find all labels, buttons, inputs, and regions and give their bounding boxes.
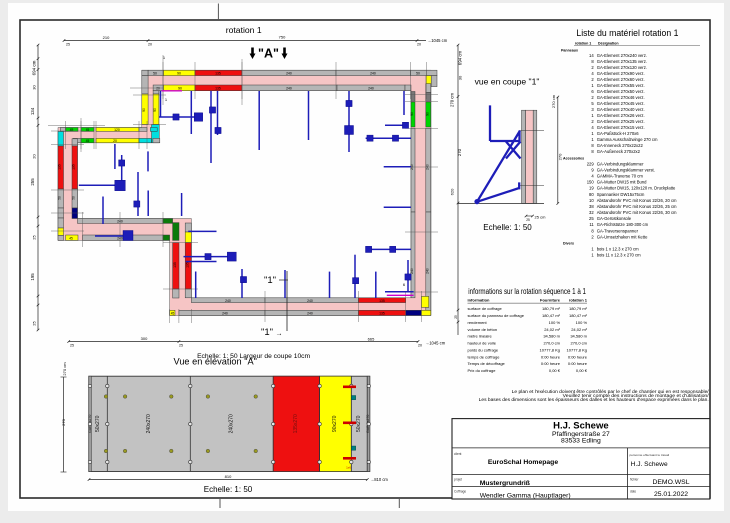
svg-text:135: 135 bbox=[215, 86, 221, 90]
svg-text:GAMMA-Traverse 70 cm: GAMMA-Traverse 70 cm bbox=[597, 174, 644, 179]
svg-text:270 cm: 270 cm bbox=[551, 94, 556, 108]
svg-text:rotation 1: rotation 1 bbox=[569, 297, 588, 302]
svg-text:"A": "A" bbox=[258, 47, 279, 61]
svg-text:135: 135 bbox=[185, 262, 189, 268]
svg-text:0,00 €: 0,00 € bbox=[576, 368, 588, 373]
svg-text:"1": "1" bbox=[264, 275, 276, 286]
svg-text:GA-Außeneck 270x2x2: GA-Außeneck 270x2x2 bbox=[597, 149, 641, 154]
svg-text:24,02 m³: 24,02 m³ bbox=[571, 327, 587, 332]
svg-text:240x270: 240x270 bbox=[146, 414, 152, 433]
svg-text:GA-Paßstück-H 270x6: GA-Paßstück-H 270x6 bbox=[597, 131, 640, 136]
svg-text:50x270: 50x270 bbox=[356, 415, 362, 432]
svg-text:1x6: 1x6 bbox=[346, 466, 351, 470]
svg-text:GA-Element 270x50 verz.: GA-Element 270x50 verz. bbox=[597, 89, 645, 94]
svg-text:Liste du matériel rotation 1: Liste du matériel rotation 1 bbox=[576, 28, 678, 38]
svg-text:90: 90 bbox=[178, 86, 182, 90]
svg-text:150: 150 bbox=[587, 180, 595, 185]
svg-text:informations sur la rotation: informations sur la rotation séquence 1 … bbox=[468, 287, 586, 296]
svg-text:Wendler Gamma (Hauptlager): Wendler Gamma (Hauptlager) bbox=[480, 492, 571, 499]
svg-text:→810 cm: →810 cm bbox=[370, 477, 388, 482]
svg-text:temps de coffrage: temps de coffrage bbox=[468, 354, 501, 359]
svg-text:information: information bbox=[468, 297, 491, 302]
svg-text:Désignation: Désignation bbox=[598, 41, 619, 45]
svg-text:Coffrage: Coffrage bbox=[454, 489, 466, 493]
svg-text:90: 90 bbox=[142, 108, 146, 112]
svg-text:GA-Mutter DW15, 120x120 m. Dru: GA-Mutter DW15, 120x120 m. Druckplatte bbox=[597, 186, 676, 191]
svg-text:GA-Traversenspanner: GA-Traversenspanner bbox=[597, 228, 639, 233]
svg-text:30: 30 bbox=[458, 75, 463, 80]
svg-text:GA-Inneneck 270x22x22: GA-Inneneck 270x22x22 bbox=[597, 143, 644, 148]
svg-text:GA-Element 270x240 verz.: GA-Element 270x240 verz. bbox=[597, 53, 647, 58]
svg-text:10777,8 Kg: 10777,8 Kg bbox=[567, 347, 587, 352]
svg-text:0,00 €: 0,00 € bbox=[549, 368, 561, 373]
svg-text:rendement: rendement bbox=[468, 320, 488, 325]
svg-text:Prix du coffrage: Prix du coffrage bbox=[468, 368, 497, 373]
svg-text:240: 240 bbox=[425, 268, 429, 274]
svg-text:210: 210 bbox=[103, 35, 110, 40]
svg-text:229: 229 bbox=[587, 161, 595, 166]
svg-text:Mustergrundriß: Mustergrundriß bbox=[480, 480, 530, 487]
svg-text:20: 20 bbox=[156, 86, 160, 90]
svg-text:30: 30 bbox=[31, 85, 36, 90]
svg-text:Temps de décoffrage: Temps de décoffrage bbox=[468, 361, 506, 366]
svg-text:240: 240 bbox=[368, 86, 374, 90]
svg-text:Abstandsrohr PVC mit Konus 22/: Abstandsrohr PVC mit Konus 22/26, 25 cm bbox=[597, 204, 677, 209]
svg-text:25: 25 bbox=[526, 218, 530, 222]
svg-text:vue en coupe "1": vue en coupe "1" bbox=[475, 77, 540, 87]
svg-text:Les bases des dimensions sont: Les bases des dimensions sont les épaiss… bbox=[479, 397, 709, 402]
svg-text:270 cm: 270 cm bbox=[62, 362, 67, 376]
svg-text:135: 135 bbox=[379, 299, 385, 303]
svg-text:hauteur de voile: hauteur de voile bbox=[468, 341, 497, 346]
svg-text:fichier: fichier bbox=[630, 477, 639, 481]
svg-text:135: 135 bbox=[379, 311, 385, 315]
svg-text:19: 19 bbox=[589, 186, 594, 191]
svg-text:25 cm: 25 cm bbox=[535, 214, 547, 219]
svg-text:50: 50 bbox=[58, 196, 62, 200]
svg-text:45: 45 bbox=[69, 236, 73, 240]
svg-text:25: 25 bbox=[179, 344, 183, 348]
svg-text:240: 240 bbox=[286, 71, 292, 75]
svg-text:270,0 cm: 270,0 cm bbox=[571, 341, 588, 346]
svg-text:134: 134 bbox=[30, 107, 35, 115]
svg-text:25: 25 bbox=[66, 42, 70, 46]
svg-text:100 %: 100 % bbox=[576, 320, 588, 325]
svg-text:240x270: 240x270 bbox=[229, 414, 235, 433]
svg-text:→1045 cm: →1045 cm bbox=[427, 38, 448, 43]
svg-text:32: 32 bbox=[589, 210, 594, 215]
svg-text:GA-Mutter DW15 mit Bund: GA-Mutter DW15 mit Bund bbox=[597, 180, 647, 185]
svg-text:270: 270 bbox=[457, 148, 462, 156]
svg-text:"1": "1" bbox=[261, 327, 273, 338]
svg-text:25: 25 bbox=[454, 315, 458, 319]
svg-text:GA-Element 270x55 verz.: GA-Element 270x55 verz. bbox=[597, 83, 645, 88]
svg-text:GA-Element 270x135 verz.: GA-Element 270x135 verz. bbox=[597, 59, 647, 64]
svg-text:GA-Element 270x25 verz.: GA-Element 270x25 verz. bbox=[597, 119, 645, 124]
svg-text:45: 45 bbox=[86, 139, 90, 143]
svg-text:34,580 m: 34,580 m bbox=[570, 334, 587, 339]
svg-text:11: 11 bbox=[589, 222, 594, 227]
svg-text:20: 20 bbox=[113, 139, 117, 143]
svg-text:80: 80 bbox=[589, 192, 594, 197]
svg-text:10: 10 bbox=[589, 198, 594, 203]
svg-text:GA-Element 270x45 verz.: GA-Element 270x45 verz. bbox=[597, 101, 645, 106]
svg-text:GA-Element 270x46 verz.: GA-Element 270x46 verz. bbox=[597, 95, 645, 100]
svg-text:135: 135 bbox=[58, 164, 62, 170]
svg-text:20: 20 bbox=[31, 154, 36, 159]
svg-text:50x270: 50x270 bbox=[95, 415, 101, 432]
svg-text:Spannanker DW15x75cm: Spannanker DW15x75cm bbox=[597, 192, 645, 197]
svg-text:694 cm: 694 cm bbox=[31, 60, 36, 75]
svg-text:14: 14 bbox=[589, 53, 594, 58]
svg-text:GA-Element 270x120 verz.: GA-Element 270x120 verz. bbox=[597, 65, 647, 70]
svg-text:240: 240 bbox=[286, 86, 292, 90]
svg-text:Gamma Ausschalzwinge 270 cm: Gamma Ausschalzwinge 270 cm bbox=[597, 137, 658, 142]
svg-text:180,79 m²: 180,79 m² bbox=[542, 306, 561, 311]
svg-text:Accessoires: Accessoires bbox=[563, 156, 584, 160]
svg-text:rotation 1: rotation 1 bbox=[226, 25, 262, 35]
svg-text:270,0 cm: 270,0 cm bbox=[544, 341, 561, 346]
svg-text:45: 45 bbox=[86, 128, 90, 132]
svg-text:EuroSchal Homepage: EuroSchal Homepage bbox=[488, 459, 558, 466]
svg-text:240: 240 bbox=[370, 71, 376, 75]
svg-text:0:00 heure: 0:00 heure bbox=[541, 361, 561, 366]
svg-text:Panneaux: Panneaux bbox=[561, 49, 578, 53]
svg-text:Fourniture: Fourniture bbox=[540, 297, 561, 302]
svg-text:240: 240 bbox=[410, 268, 414, 274]
svg-text:120: 120 bbox=[114, 128, 120, 132]
svg-text:Echelle: 1: 50 Largeur de co: Echelle: 1: 50 Largeur de coupe 10cm bbox=[197, 353, 310, 360]
svg-text:GA-Element 270x26 verz.: GA-Element 270x26 verz. bbox=[597, 113, 645, 118]
svg-text:personne effectuant le travail: personne effectuant le travail bbox=[630, 453, 670, 457]
svg-text:→1045 cm: →1045 cm bbox=[425, 341, 446, 346]
svg-text:Abstandsrohr PVC mit Konus 22/: Abstandsrohr PVC mit Konus 22/26, 20 cm bbox=[597, 198, 677, 203]
svg-text:45: 45 bbox=[171, 312, 175, 316]
svg-text:0:00 heure: 0:00 heure bbox=[541, 354, 561, 359]
svg-text:Divers: Divers bbox=[563, 242, 574, 246]
svg-text:90x270: 90x270 bbox=[332, 415, 338, 432]
svg-text:10777,8 Kg: 10777,8 Kg bbox=[540, 347, 560, 352]
svg-text:90: 90 bbox=[425, 112, 429, 116]
svg-text:255: 255 bbox=[30, 178, 35, 186]
svg-text:620: 620 bbox=[450, 188, 455, 195]
svg-text:Echelle: 1: 50: Echelle: 1: 50 bbox=[204, 485, 253, 494]
svg-text:25: 25 bbox=[589, 216, 594, 221]
svg-text:50: 50 bbox=[72, 196, 76, 200]
svg-text:Echelle: 1: 50: Echelle: 1: 50 bbox=[483, 223, 532, 232]
svg-text:50: 50 bbox=[153, 71, 157, 75]
svg-text:240: 240 bbox=[222, 311, 228, 315]
svg-text:20: 20 bbox=[417, 42, 421, 46]
svg-text:GA-Element 270x90 verz.: GA-Element 270x90 verz. bbox=[597, 71, 645, 76]
svg-text:180,47 m²: 180,47 m² bbox=[569, 313, 588, 318]
svg-text:H.J. Schewe: H.J. Schewe bbox=[631, 461, 668, 468]
svg-text:surface de coffrage: surface de coffrage bbox=[468, 306, 503, 311]
svg-text:100 %: 100 % bbox=[549, 320, 561, 325]
svg-text:665: 665 bbox=[368, 337, 375, 342]
svg-text:volume de béton: volume de béton bbox=[468, 327, 498, 332]
svg-text:20: 20 bbox=[148, 42, 152, 46]
svg-text:GA-Element 270x40 verz.: GA-Element 270x40 verz. bbox=[597, 107, 645, 112]
svg-text:GA-Umsetzhaken mit Kette: GA-Umsetzhaken mit Kette bbox=[597, 234, 648, 239]
svg-text:bois 1 x 12.3 x 270 cm: bois 1 x 12.3 x 270 cm bbox=[597, 246, 639, 251]
svg-text:bois 11 x 12.3 x 270 cm: bois 11 x 12.3 x 270 cm bbox=[597, 253, 641, 258]
svg-text:750: 750 bbox=[279, 35, 286, 40]
svg-text:90: 90 bbox=[177, 71, 181, 75]
svg-text:projet: projet bbox=[454, 477, 462, 481]
svg-text:135x270: 135x270 bbox=[293, 414, 299, 433]
svg-text:135: 135 bbox=[72, 164, 76, 170]
svg-text:mètre linéaire: mètre linéaire bbox=[468, 334, 493, 339]
svg-text:38: 38 bbox=[589, 204, 594, 209]
svg-text:180,79 m²: 180,79 m² bbox=[569, 306, 588, 311]
svg-text:client: client bbox=[454, 452, 462, 456]
svg-text:date: date bbox=[630, 489, 636, 493]
svg-text:270: 270 bbox=[558, 153, 563, 160]
svg-text:25: 25 bbox=[31, 321, 36, 326]
svg-text:135: 135 bbox=[215, 71, 221, 75]
svg-text:240: 240 bbox=[307, 311, 313, 315]
svg-text:GA-Richtstütze 180-300 cm: GA-Richtstütze 180-300 cm bbox=[597, 222, 649, 227]
svg-text:45: 45 bbox=[70, 128, 74, 132]
svg-text:25: 25 bbox=[31, 235, 36, 240]
svg-text:195: 195 bbox=[30, 273, 35, 281]
svg-text:Abstandsrohr PVC mit Konus 22/: Abstandsrohr PVC mit Konus 22/26, 30 cm bbox=[597, 210, 677, 215]
svg-text:240: 240 bbox=[307, 299, 313, 303]
svg-text:surface du panneau de coffrage: surface du panneau de coffrage bbox=[468, 313, 525, 318]
svg-text:180,47 m²: 180,47 m² bbox=[542, 313, 561, 318]
svg-text:90: 90 bbox=[410, 112, 414, 116]
svg-text:GA-Element 270x15 verz.: GA-Element 270x15 verz. bbox=[597, 125, 645, 130]
svg-text:25: 25 bbox=[70, 344, 74, 348]
svg-text:GA-Verbindungsklammer: GA-Verbindungsklammer bbox=[597, 161, 644, 166]
svg-text:50: 50 bbox=[416, 71, 420, 75]
svg-text:240: 240 bbox=[225, 299, 231, 303]
svg-text:90: 90 bbox=[153, 108, 157, 112]
svg-text:83533 Edling: 83533 Edling bbox=[561, 437, 601, 444]
svg-text:DEMO.WSL: DEMO.WSL bbox=[652, 479, 689, 486]
svg-text:GA-Gerüstkonsole: GA-Gerüstkonsole bbox=[597, 216, 632, 221]
svg-text:270 cm: 270 cm bbox=[450, 93, 455, 108]
svg-text:0:00 heure: 0:00 heure bbox=[568, 354, 588, 359]
svg-text:GA-Verbindungsklammer verst.: GA-Verbindungsklammer verst. bbox=[597, 168, 655, 173]
svg-text:25.01.2022: 25.01.2022 bbox=[654, 491, 688, 498]
svg-text:GA-Element 270x60 verz.: GA-Element 270x60 verz. bbox=[597, 77, 645, 82]
svg-text:270: 270 bbox=[61, 418, 66, 425]
svg-text:34,580 m: 34,580 m bbox=[543, 334, 560, 339]
svg-text:135: 135 bbox=[173, 262, 177, 268]
svg-text:24,02 m³: 24,02 m³ bbox=[544, 327, 560, 332]
svg-text:poids du coffrage: poids du coffrage bbox=[468, 347, 499, 352]
svg-text:20: 20 bbox=[418, 344, 422, 348]
svg-text:694 cm: 694 cm bbox=[458, 50, 463, 65]
svg-text:300: 300 bbox=[141, 336, 148, 341]
svg-text:810: 810 bbox=[225, 474, 232, 479]
svg-text:→: → bbox=[276, 331, 283, 338]
svg-text:0:00 heure: 0:00 heure bbox=[568, 361, 588, 366]
svg-text:rotation 1: rotation 1 bbox=[575, 41, 591, 45]
